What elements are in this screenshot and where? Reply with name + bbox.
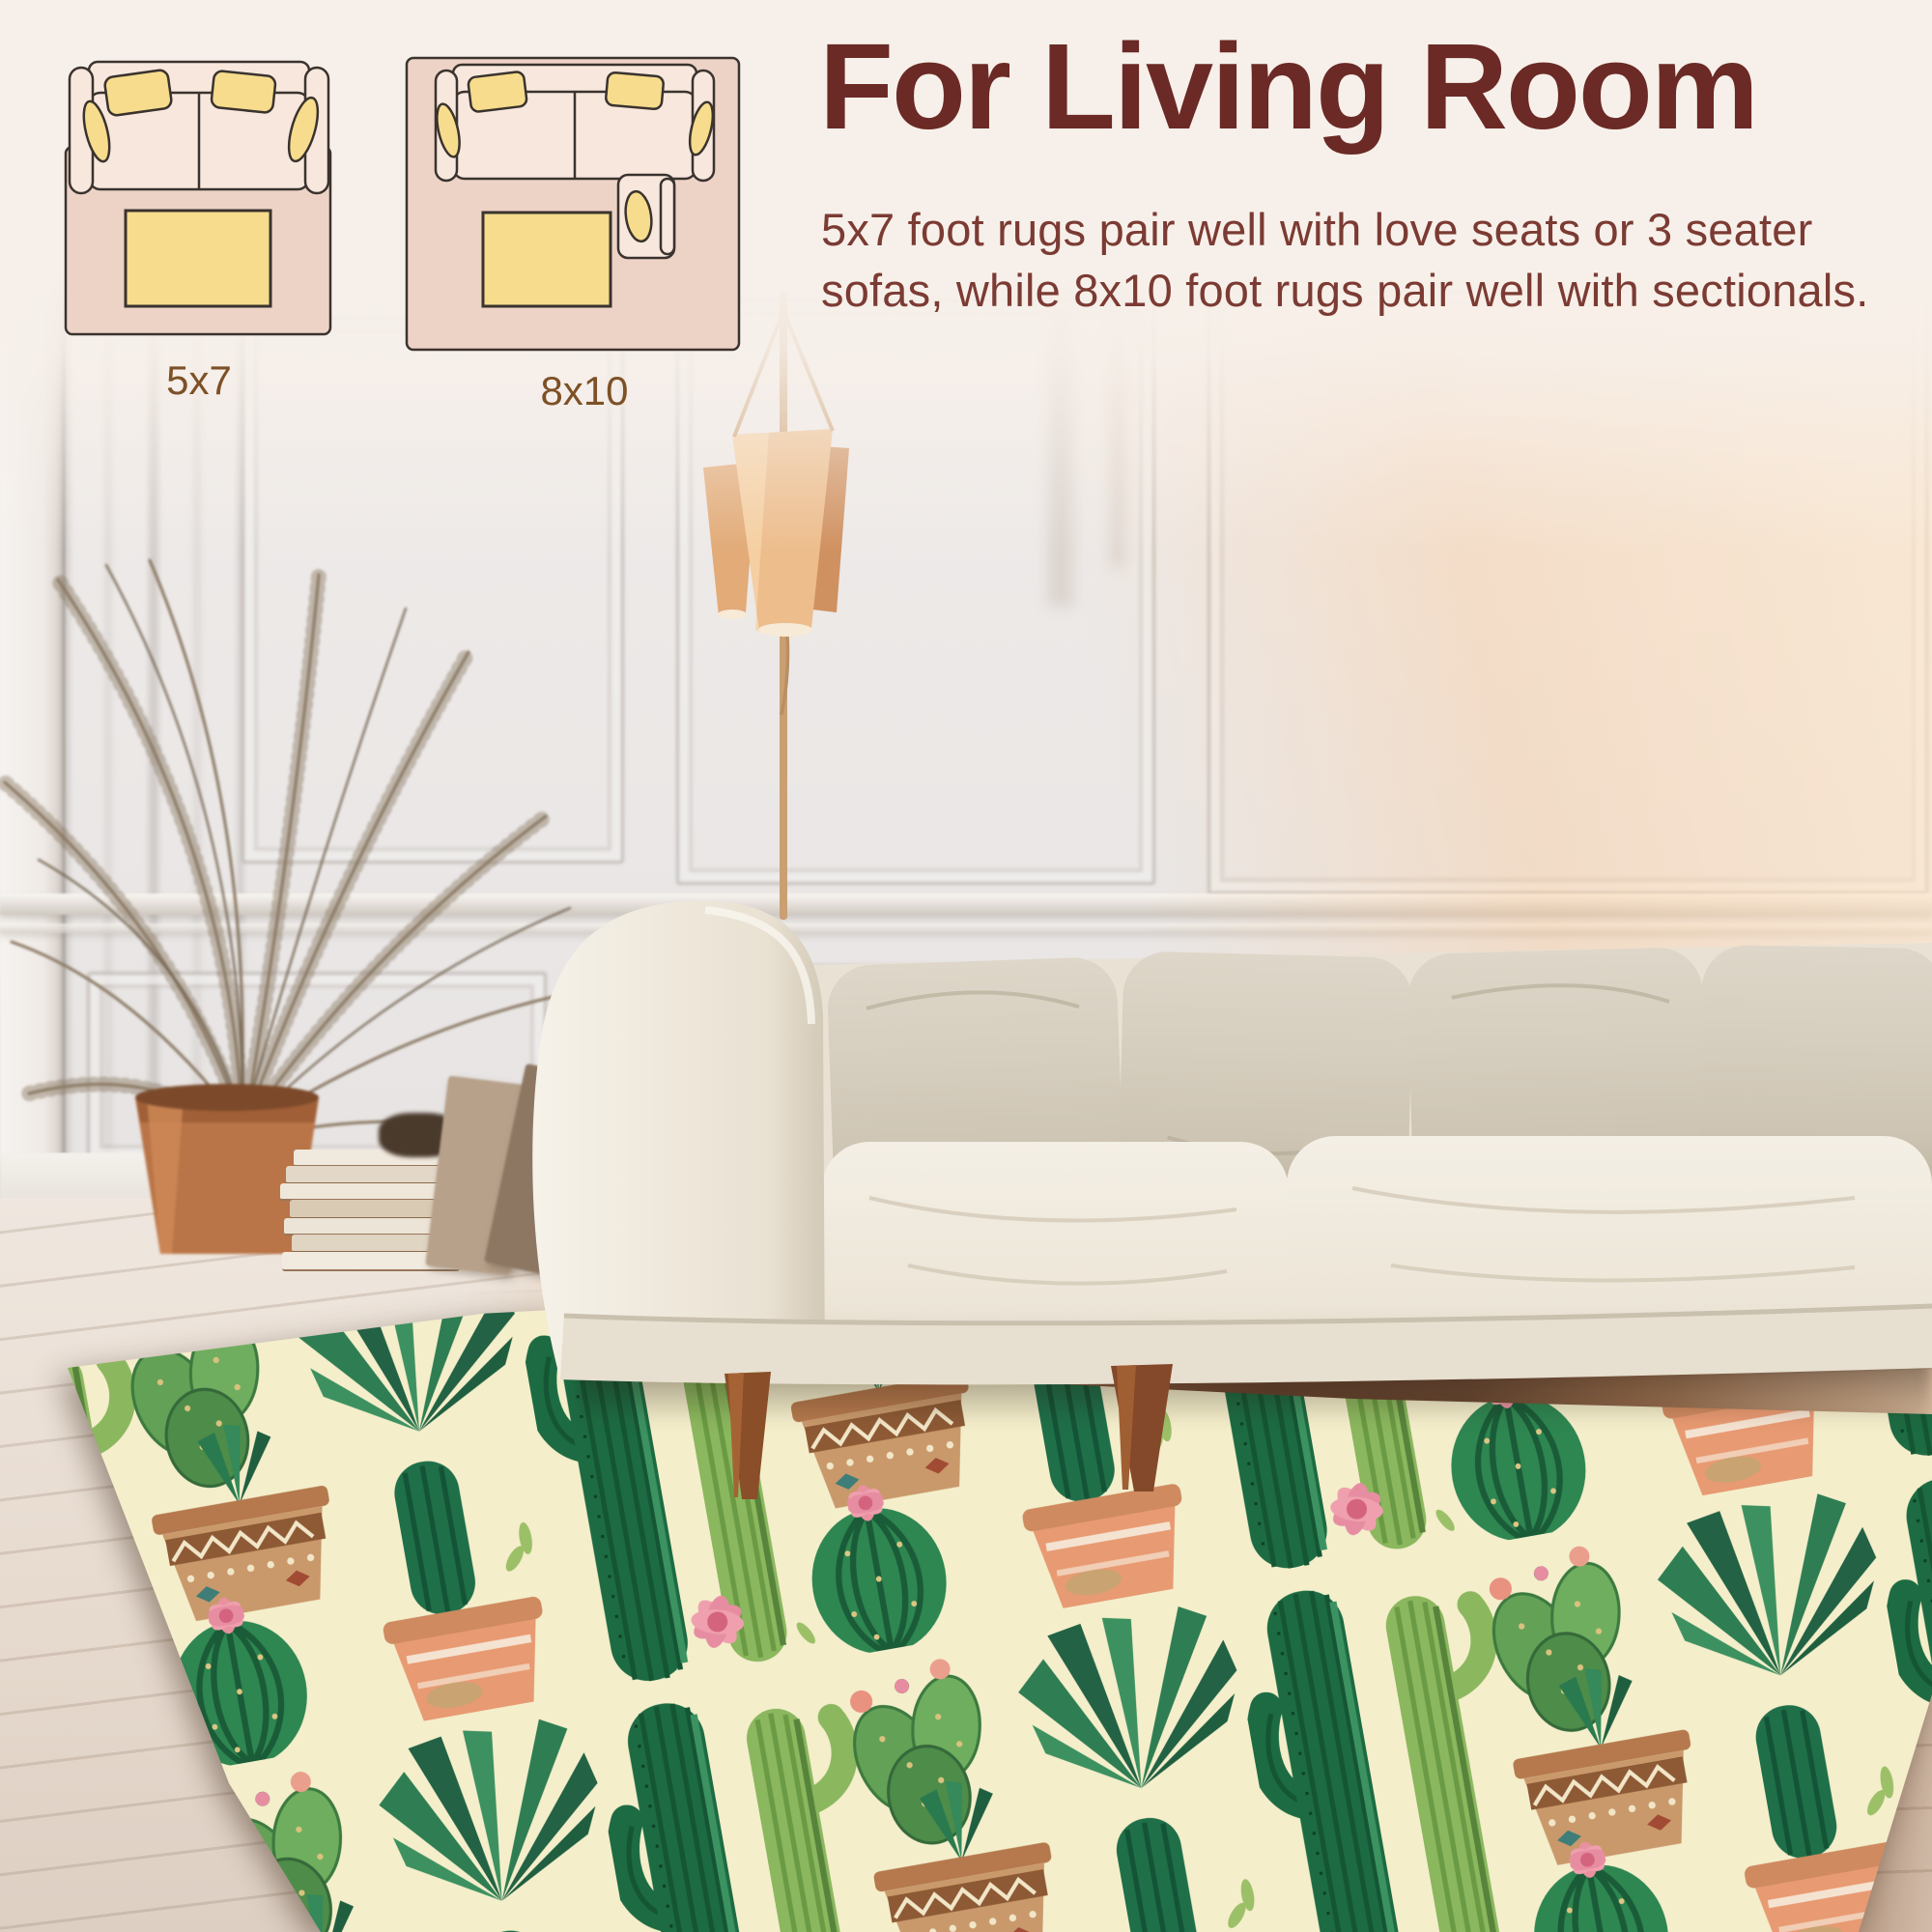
description-line: 5x7 foot rugs pair well with love seats … [821, 199, 1893, 260]
cream-sofa [502, 850, 1932, 1526]
armchair-top-view-icon [618, 175, 674, 258]
loveseat-top-view-icon [70, 62, 328, 193]
coffee-table-icon [483, 213, 611, 306]
page-description: 5x7 foot rugs pair well with love seats … [821, 199, 1893, 321]
diagram-5x7 [50, 37, 350, 355]
diagram-8x10 [404, 53, 744, 357]
size-label-5x7: 5x7 [102, 357, 296, 404]
sofa-arm [532, 901, 825, 1379]
size-label-8x10: 8x10 [488, 368, 681, 414]
three-seater-top-view-icon [433, 65, 718, 181]
description-line: sofas, while 8x10 foot rugs pair well wi… [821, 260, 1893, 321]
coffee-table-icon [126, 211, 270, 306]
product-infographic: For Living Room 5x7 foot rugs pair well … [0, 0, 1932, 1932]
page-title: For Living Room [819, 23, 1757, 151]
